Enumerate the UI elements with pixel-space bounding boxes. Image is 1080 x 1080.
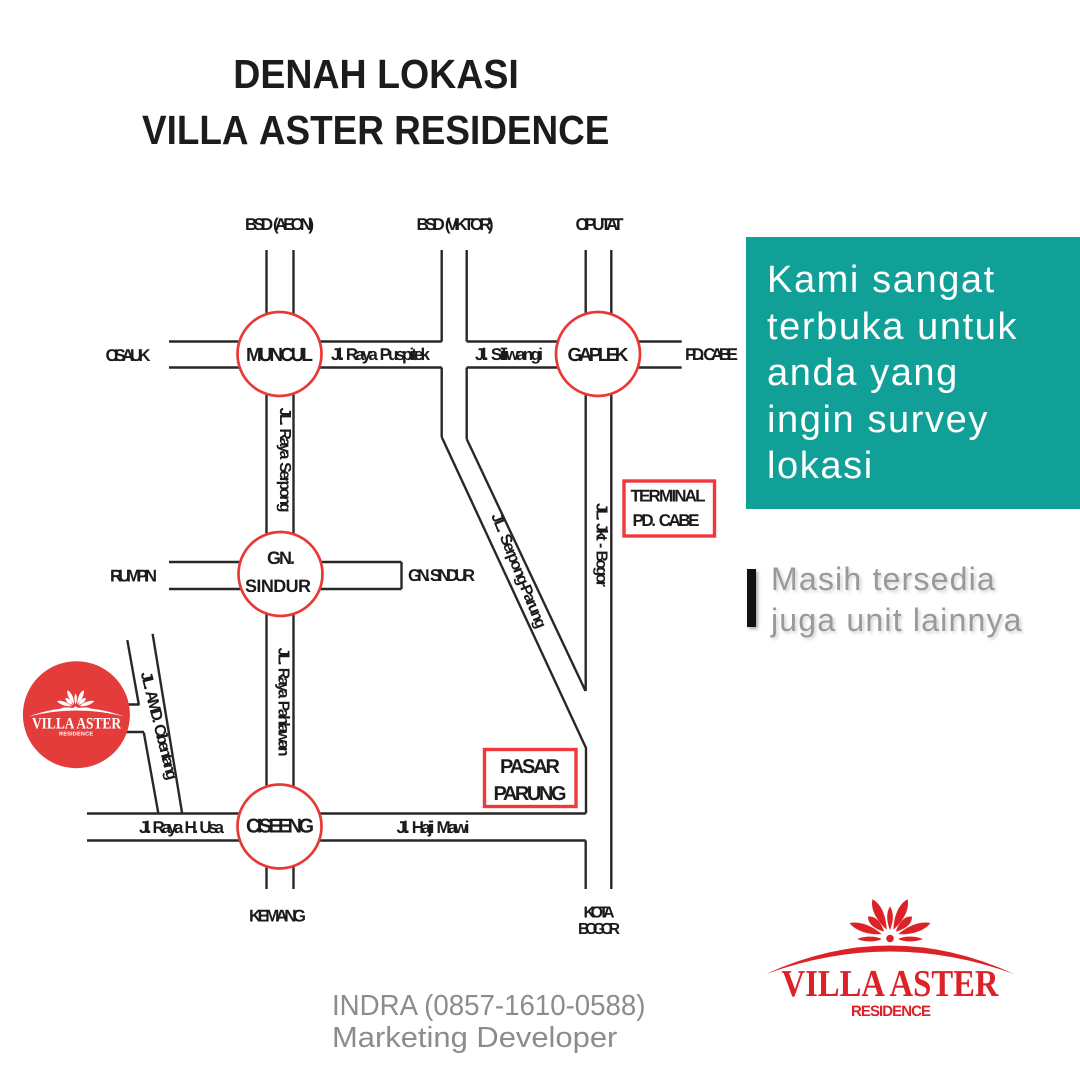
svg-text:CISAUK: CISAUK [106,346,152,365]
svg-text:MUNCUL: MUNCUL [246,345,313,366]
svg-text:CIPUTAT: CIPUTAT [576,215,625,234]
svg-text:JL. Jkt - Bogor: JL. Jkt - Bogor [593,503,610,587]
svg-text:PD. CABE: PD. CABE [685,345,738,364]
svg-text:KOTA: KOTA [584,905,615,922]
svg-text:SINDUR: SINDUR [245,576,311,596]
svg-text:RESIDENCE: RESIDENCE [851,1003,931,1020]
svg-text:JL. AMD. Cibentang: JL. AMD. Cibentang [137,670,180,782]
svg-text:PD. CABE: PD. CABE [633,511,700,530]
svg-text:VILLA ASTER: VILLA ASTER [782,963,999,1005]
svg-text:GN.: GN. [267,548,295,568]
svg-text:KEMANG: KEMANG [249,907,306,926]
svg-text:RUMPIN: RUMPIN [110,567,157,586]
svg-text:TERMINAL: TERMINAL [631,487,706,506]
svg-text:JL. Serpong-Parung: JL. Serpong-Parung [487,511,549,631]
svg-text:CISEENG: CISEENG [246,816,314,838]
svg-text:PASAR: PASAR [500,756,561,778]
svg-text:BSD (AEON): BSD (AEON) [245,215,314,234]
svg-text:PARUNG: PARUNG [494,783,567,805]
svg-text:JL. Raya Serpong: JL. Raya Serpong [276,408,293,513]
svg-text:VILLA ASTER: VILLA ASTER [32,716,121,733]
svg-text:RESIDENCE: RESIDENCE [59,732,93,738]
svg-text:BSD (VIKTOR): BSD (VIKTOR) [417,215,494,234]
svg-text:GN. SINDUR: GN. SINDUR [408,566,475,585]
svg-text:Jl. Haji Mawi: Jl. Haji Mawi [397,818,470,837]
svg-text:Jl. Raya Puspitek: Jl. Raya Puspitek [331,345,431,364]
svg-text:BOGOR: BOGOR [578,921,620,938]
svg-text:Jl. Siliwangi: Jl. Siliwangi [475,345,543,364]
svg-text:JL. Raya Pahlawan: JL. Raya Pahlawan [275,648,292,757]
svg-text:Jl. Raya H. Usa: Jl. Raya H. Usa [139,818,225,837]
svg-text:GAPLEK: GAPLEK [568,345,629,366]
